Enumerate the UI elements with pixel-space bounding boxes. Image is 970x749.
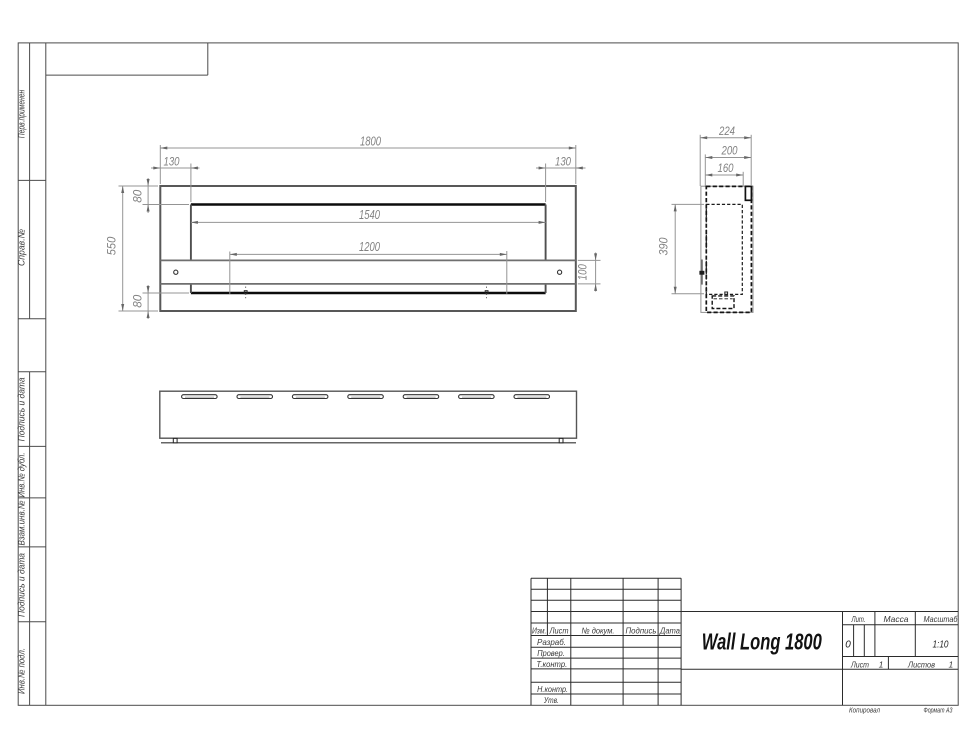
svg-text:Лит.: Лит.: [851, 614, 866, 624]
svg-text:№ докум.: № докум.: [582, 626, 615, 636]
svg-text:100: 100: [576, 264, 590, 280]
svg-text:Н.контр.: Н.контр.: [537, 684, 568, 694]
svg-text:Подпись и дата: Подпись и дата: [17, 553, 27, 617]
svg-text:80: 80: [131, 294, 145, 307]
svg-text:550: 550: [105, 236, 119, 255]
svg-text:Справ.№: Справ.№: [17, 229, 27, 266]
svg-text:Лист: Лист: [549, 626, 569, 636]
svg-text:Дата: Дата: [659, 626, 680, 636]
svg-text:160: 160: [718, 161, 734, 175]
svg-text:Формат А3: Формат А3: [924, 708, 953, 715]
svg-text:1800: 1800: [360, 134, 381, 148]
svg-text:Провер.: Провер.: [537, 648, 565, 658]
svg-text:0: 0: [845, 640, 851, 651]
svg-text:Листов: Листов: [907, 659, 935, 669]
svg-text:130: 130: [555, 155, 571, 169]
svg-text:Подпись: Подпись: [626, 626, 657, 636]
svg-text:Wall Long 1800: Wall Long 1800: [702, 629, 822, 655]
svg-text:Подпись и дата: Подпись и дата: [17, 377, 27, 441]
svg-text:1540: 1540: [359, 208, 380, 222]
svg-text:390: 390: [657, 237, 671, 255]
svg-text:Изм.: Изм.: [532, 626, 547, 636]
svg-text:Взам.инв.№: Взам.инв.№: [17, 500, 27, 545]
svg-text:Масштаб: Масштаб: [924, 614, 959, 624]
svg-text:Утв.: Утв.: [543, 695, 559, 705]
svg-text:1:10: 1:10: [933, 639, 949, 651]
svg-text:Разраб.: Разраб.: [537, 637, 566, 647]
svg-text:Перв.применен: Перв.применен: [17, 90, 27, 139]
svg-text:Масса: Масса: [884, 614, 909, 624]
svg-text:200: 200: [721, 144, 738, 158]
svg-text:Лист: Лист: [850, 659, 869, 669]
svg-text:Копировал: Копировал: [849, 708, 880, 715]
svg-text:130: 130: [164, 155, 180, 169]
svg-text:80: 80: [131, 189, 145, 202]
svg-text:224: 224: [718, 124, 735, 138]
svg-text:1: 1: [949, 659, 954, 669]
svg-text:Инв.№ дубл.: Инв.№ дубл.: [17, 453, 27, 498]
svg-text:Т.контр.: Т.контр.: [536, 659, 567, 669]
svg-text:Инв.№ подл.: Инв.№ подл.: [17, 648, 27, 694]
svg-text:1: 1: [879, 659, 884, 669]
svg-text:1200: 1200: [359, 240, 380, 254]
